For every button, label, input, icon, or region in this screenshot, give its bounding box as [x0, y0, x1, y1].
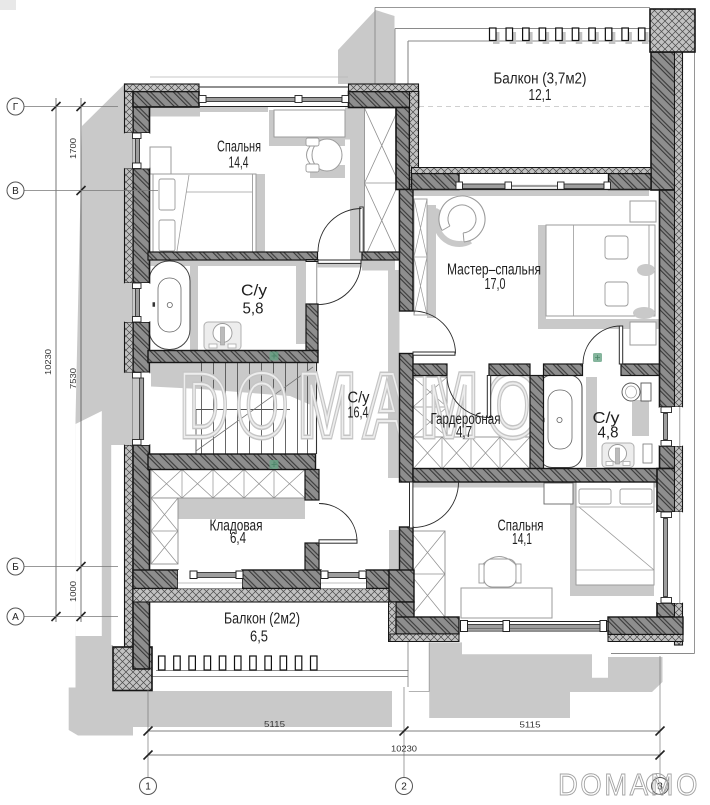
svg-text:O: O — [236, 355, 288, 457]
svg-text:10230: 10230 — [44, 348, 53, 375]
svg-text:Г: Г — [13, 102, 19, 113]
svg-text:7530: 7530 — [69, 367, 78, 389]
svg-text:4,7: 4,7 — [456, 424, 472, 441]
svg-text:1000: 1000 — [69, 580, 78, 602]
svg-text:14,4: 14,4 — [229, 155, 249, 172]
svg-text:Балкон (3,7м2): Балкон (3,7м2) — [494, 71, 587, 88]
svg-text:1: 1 — [145, 782, 151, 793]
svg-text:D: D — [180, 355, 228, 457]
svg-text:В: В — [12, 186, 19, 197]
svg-text:6,5: 6,5 — [250, 629, 268, 646]
svg-text:5,8: 5,8 — [243, 301, 264, 318]
svg-text:Б: Б — [12, 562, 19, 573]
svg-text:Спальня: Спальня — [217, 138, 261, 155]
svg-text:С/у: С/у — [241, 283, 267, 300]
svg-text:1700: 1700 — [69, 137, 78, 159]
svg-text:5115: 5115 — [520, 721, 542, 730]
svg-text:6,4: 6,4 — [230, 530, 246, 547]
svg-text:2: 2 — [401, 782, 407, 793]
svg-text:12,1: 12,1 — [529, 87, 552, 104]
svg-text:17,0: 17,0 — [485, 276, 506, 293]
svg-text:Балкон (2м2): Балкон (2м2) — [224, 611, 300, 628]
svg-text:16,4: 16,4 — [348, 405, 369, 422]
svg-text:DOMAMO: DOMAMO — [558, 767, 700, 800]
svg-text:10230: 10230 — [391, 745, 418, 754]
svg-text:4,8: 4,8 — [598, 425, 619, 442]
svg-text:14,1: 14,1 — [512, 531, 532, 548]
svg-text:5115: 5115 — [264, 720, 286, 729]
svg-text:А: А — [12, 612, 19, 623]
